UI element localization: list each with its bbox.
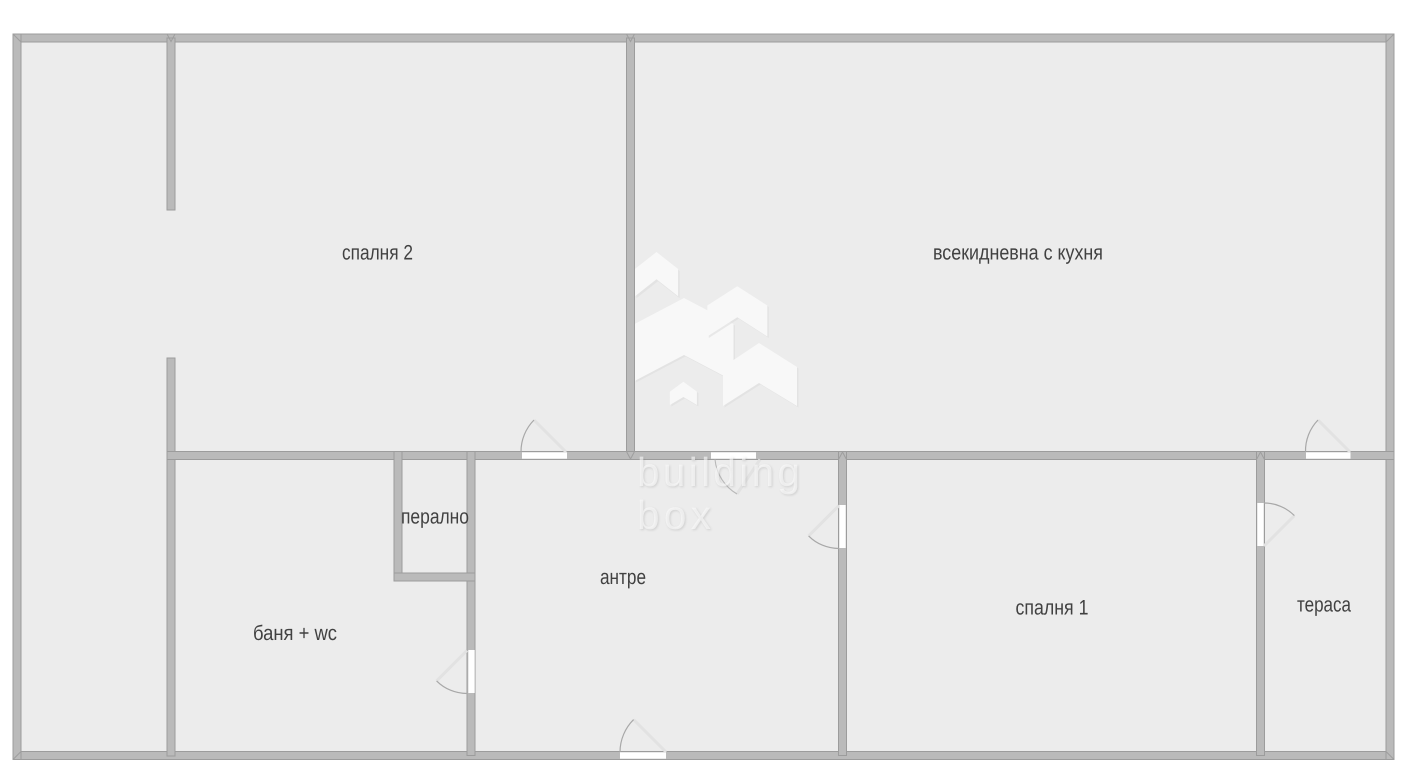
- svg-text:всекидневна с кухня: всекидневна с кухня: [933, 242, 1103, 265]
- svg-text:перално: перално: [401, 506, 469, 529]
- svg-text:баня + wc: баня + wc: [253, 622, 337, 645]
- svg-text:спалня 1: спалня 1: [1016, 597, 1089, 620]
- svg-text:спалня 2: спалня 2: [342, 242, 413, 265]
- svg-text:антре: антре: [600, 566, 646, 589]
- svg-text:box: box: [637, 492, 711, 538]
- svg-text:тераса: тераса: [1297, 594, 1351, 617]
